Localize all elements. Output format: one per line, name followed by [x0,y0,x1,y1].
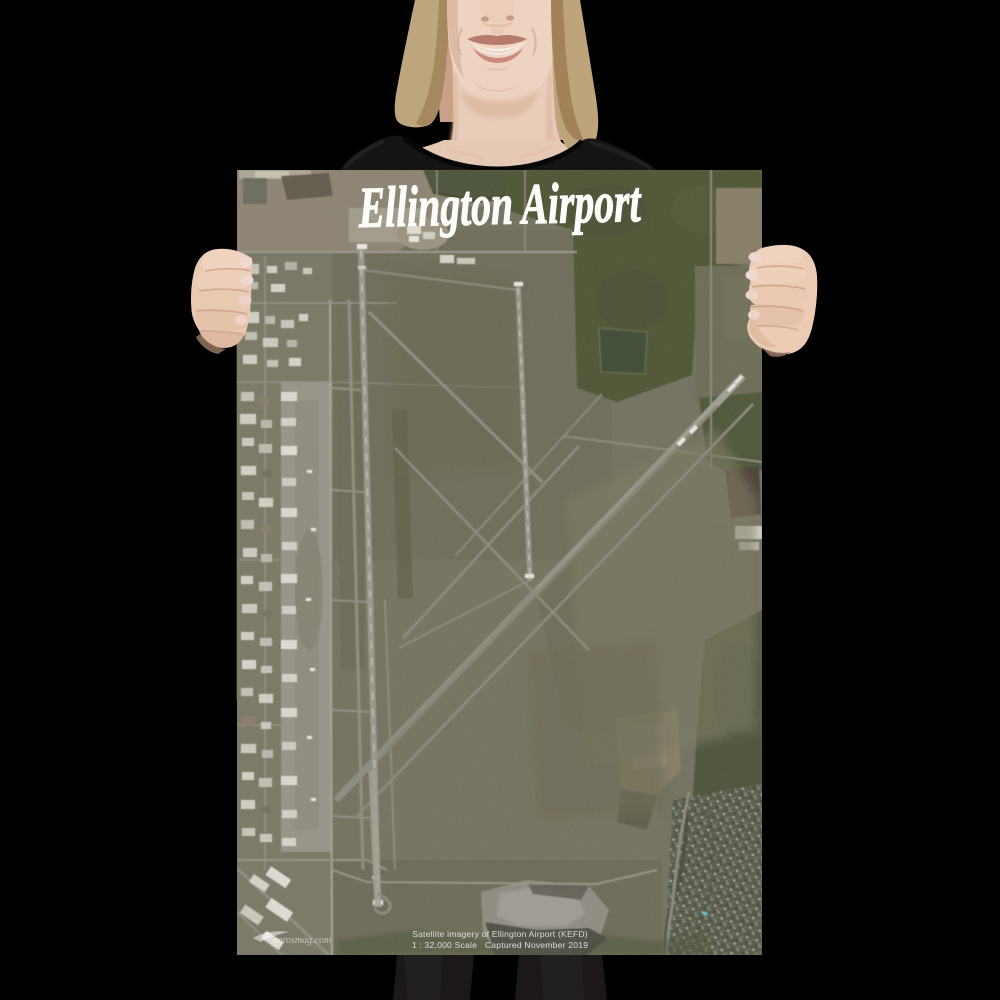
svg-text:Ellington Airport: Ellington Airport [357,169,642,240]
svg-text:Satellite imagery of Ellington: Satellite imagery of Ellington Airport (… [412,929,588,939]
svg-text:1 : 32,000 Scale Captured No: 1 : 32,000 Scale Captured November 2019 [412,940,588,950]
svg-text:aerosmag.com: aerosmag.com [273,935,331,946]
